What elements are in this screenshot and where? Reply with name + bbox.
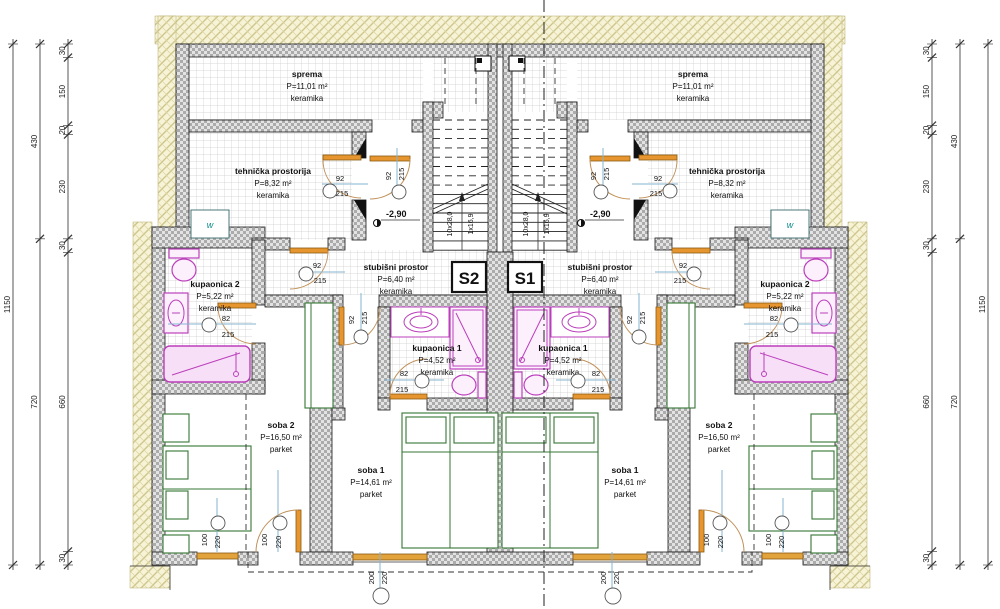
unit-label-s2: S2 <box>459 269 480 288</box>
door-height: 215 <box>650 189 663 198</box>
room-area: P=8,32 m² <box>708 179 745 188</box>
stair-treads-label: 10x28,0 <box>447 211 454 236</box>
door-width: 92 <box>336 174 344 183</box>
dimension-label: 150 <box>922 84 931 98</box>
dimension-label: 660 <box>58 395 67 409</box>
window-sill <box>573 554 647 560</box>
dimension-label: 720 <box>950 395 959 409</box>
door-width: 82 <box>400 369 408 378</box>
room-area: P=5,22 m² <box>766 292 803 301</box>
room-name: stubišni prostor <box>364 262 429 272</box>
door-width: 82 <box>770 314 778 323</box>
window-width: 200 <box>599 572 608 585</box>
door-height: 215 <box>638 312 647 325</box>
window-height: 220 <box>274 536 283 549</box>
unit-label-s1: S1 <box>515 269 536 288</box>
door-width: 92 <box>347 316 356 324</box>
pillow <box>166 491 188 519</box>
room-floor: keramika <box>199 304 232 313</box>
door-height: 215 <box>314 276 327 285</box>
room-floor: parket <box>614 490 637 499</box>
room-floor: parket <box>708 445 731 454</box>
room-name: kupaonica 2 <box>190 279 239 289</box>
dimension-label: 30 <box>922 46 931 55</box>
door-leaf <box>573 394 610 399</box>
door-height: 215 <box>397 168 406 181</box>
room-floor: keramika <box>291 94 324 103</box>
window-sill <box>197 553 238 559</box>
door-leaf <box>290 248 328 253</box>
dimension-label: 150 <box>58 84 67 98</box>
nightstand <box>811 535 837 553</box>
pillow <box>554 417 594 443</box>
room-area: P=16,50 m² <box>260 433 302 442</box>
dimension-label: 230 <box>58 179 67 193</box>
sink-counter <box>551 307 609 337</box>
toilet-tank <box>801 249 831 258</box>
window-height: 220 <box>716 536 725 549</box>
dimension-label: 30 <box>922 241 931 250</box>
room-name: soba 1 <box>612 465 639 475</box>
door-width: 82 <box>222 314 230 323</box>
floor-plan-page: 10x28,0 1x16,9 10x28,0 1x16,9 <box>0 0 1000 609</box>
room-area: P=11,01 m² <box>673 82 714 91</box>
nightstand <box>163 414 189 442</box>
room-floor: keramika <box>257 191 290 200</box>
level-marks: -2,90 -2,90 <box>374 209 625 227</box>
room-floor: keramika <box>677 94 710 103</box>
door-leaf <box>390 394 427 399</box>
window-sill <box>762 553 803 559</box>
pillow <box>166 451 188 479</box>
door-width: 92 <box>384 172 393 180</box>
door-leaf <box>339 307 344 345</box>
room-area: P=5,22 m² <box>196 292 233 301</box>
toilet-tank <box>514 372 522 398</box>
door-width: 92 <box>654 174 662 183</box>
room-name: tehnička prostorija <box>689 166 765 176</box>
door-width: 92 <box>589 172 598 180</box>
room-name: tehnička prostorija <box>235 166 311 176</box>
dimension-label: 30 <box>58 46 67 55</box>
room-area: P=6,40 m² <box>581 275 618 284</box>
door-height: 215 <box>674 276 687 285</box>
room-area: P=4,52 m² <box>544 356 581 365</box>
room-area: P=6,40 m² <box>377 275 414 284</box>
door-width: 92 <box>625 316 634 324</box>
boiler-label: w <box>787 220 794 230</box>
room-name: sprema <box>292 69 323 79</box>
flue-niches <box>475 56 525 71</box>
door-leaf <box>656 307 661 345</box>
door-leaf <box>639 155 677 160</box>
pillow <box>454 417 494 443</box>
door-leaf <box>323 155 361 160</box>
door-width: 92 <box>313 261 321 270</box>
room-name: stubišni prostor <box>568 262 633 272</box>
door-height: 215 <box>592 385 605 394</box>
window-width: 100 <box>764 534 773 547</box>
room-floor: parket <box>270 445 293 454</box>
door-leaf <box>672 248 710 253</box>
room-name: soba 2 <box>268 420 295 430</box>
room-floor: keramika <box>584 287 617 296</box>
toilet-tank <box>478 372 486 398</box>
door-width: 82 <box>592 369 600 378</box>
door-leaf <box>590 156 630 161</box>
level-value: -2,90 <box>590 209 611 219</box>
pillow <box>812 451 834 479</box>
door-height: 215 <box>766 330 779 339</box>
door-width: 92 <box>679 261 687 270</box>
room-area: P=14,61 m² <box>350 478 392 487</box>
window-width: 200 <box>367 572 376 585</box>
room-name: kupaonica 1 <box>412 343 461 353</box>
window-width: 100 <box>260 534 269 547</box>
dimension-label: 20 <box>58 125 67 134</box>
room-name: kupaonica 2 <box>760 279 809 289</box>
door-height: 215 <box>602 168 611 181</box>
room-name: kupaonica 1 <box>538 343 587 353</box>
door-leaf <box>296 510 301 552</box>
toilet-icon <box>172 259 196 281</box>
window-height: 220 <box>213 536 222 549</box>
stair-riser-label: 1x16,9 <box>544 213 551 234</box>
dimension-label: 660 <box>922 395 931 409</box>
window-height: 220 <box>380 572 389 585</box>
dimension-label: 1150 <box>3 295 12 313</box>
door-height: 215 <box>360 312 369 325</box>
nightstand <box>811 414 837 442</box>
pillow <box>406 417 446 443</box>
dimension-label: 1150 <box>978 295 987 313</box>
toilet-tank <box>169 249 199 258</box>
room-name: soba 2 <box>706 420 733 430</box>
dimension-label: 430 <box>30 134 39 148</box>
room-area: P=16,50 m² <box>698 433 740 442</box>
dimension-label: 20 <box>922 125 931 134</box>
nightstand <box>163 535 189 553</box>
boiler-label: w <box>207 220 214 230</box>
level-value: -2,90 <box>386 209 407 219</box>
wardrobe <box>667 303 695 408</box>
dimension-label: 230 <box>922 179 931 193</box>
room-area: P=8,32 m² <box>254 179 291 188</box>
dimension-label: 30 <box>922 553 931 562</box>
door-height: 215 <box>336 189 349 198</box>
pillow <box>812 491 834 519</box>
door-height: 215 <box>222 330 235 339</box>
dimension-label: 430 <box>950 134 959 148</box>
room-name: sprema <box>678 69 709 79</box>
window-height: 220 <box>777 536 786 549</box>
room-area: P=4,52 m² <box>418 356 455 365</box>
window-width: 100 <box>200 534 209 547</box>
window-width: 100 <box>702 534 711 547</box>
window-height: 220 <box>612 572 621 585</box>
window-sill <box>353 554 427 560</box>
room-area: P=14,61 m² <box>604 478 646 487</box>
stair-treads-label: 10x28,0 <box>523 211 530 236</box>
sink-counter <box>391 307 449 337</box>
room-area: P=11,01 m² <box>287 82 328 91</box>
toilet-icon <box>804 259 828 281</box>
dimension-label: 720 <box>30 395 39 409</box>
stair-riser-label: 1x16,9 <box>468 213 475 234</box>
toilet-icon <box>452 375 476 395</box>
floor-plan-drawing: 10x28,0 1x16,9 10x28,0 1x16,9 <box>0 0 1000 609</box>
door-leaf <box>370 156 410 161</box>
room-floor: keramika <box>769 304 802 313</box>
room-floor: parket <box>360 490 383 499</box>
dimension-label: 30 <box>58 553 67 562</box>
room-floor: keramika <box>711 191 744 200</box>
room-name: soba 1 <box>358 465 385 475</box>
wardrobe <box>305 303 333 408</box>
dimension-label: 30 <box>58 241 67 250</box>
door-height: 215 <box>396 385 409 394</box>
room-floor: keramika <box>380 287 413 296</box>
pillow <box>506 417 546 443</box>
